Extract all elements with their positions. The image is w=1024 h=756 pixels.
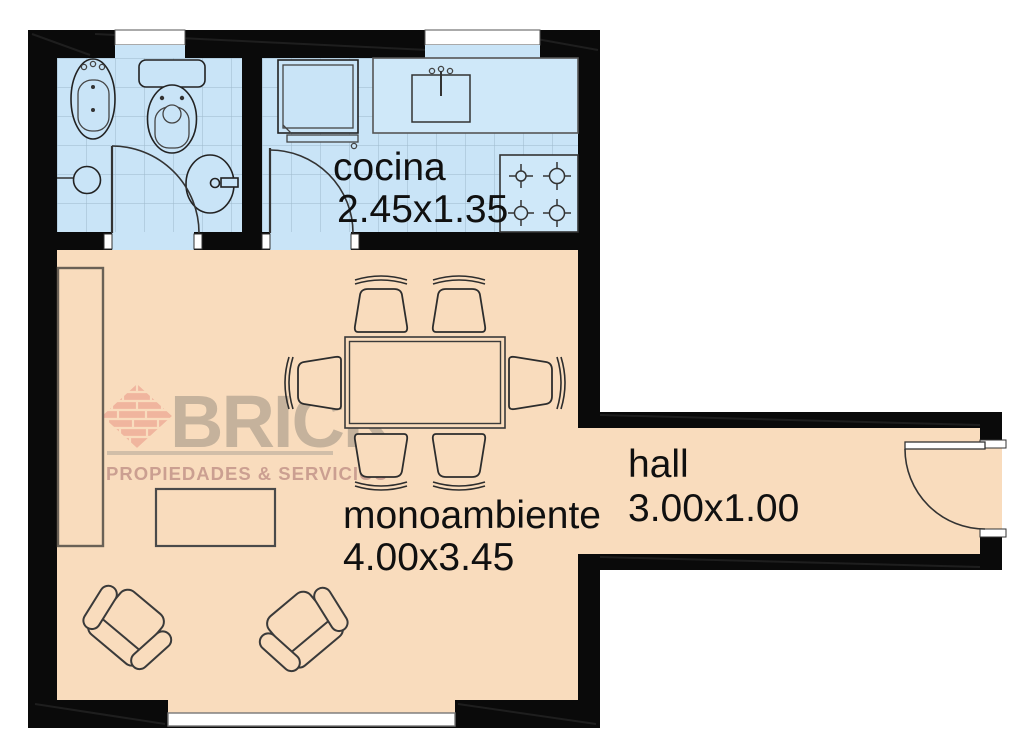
window-main-room bbox=[168, 700, 455, 726]
wardrobe bbox=[58, 268, 103, 546]
kitchen-cabinet bbox=[278, 60, 358, 149]
label-hall: hall bbox=[628, 443, 689, 486]
window-kitchen bbox=[425, 30, 540, 58]
dining-table bbox=[345, 337, 505, 428]
window-bathroom bbox=[115, 30, 185, 58]
label-cocina: cocina bbox=[333, 146, 446, 189]
kitchen-sink bbox=[412, 66, 470, 122]
wall-right-upper bbox=[578, 30, 600, 428]
wall-right-lower bbox=[578, 554, 600, 728]
wall-bath-kitchen-divider bbox=[242, 30, 262, 250]
entrance-door-opening bbox=[980, 447, 1002, 530]
sideboard bbox=[156, 489, 275, 546]
door-jamb bbox=[194, 234, 202, 249]
door-jamb bbox=[351, 234, 359, 249]
dims-monoambiente: 4.00x3.45 bbox=[343, 536, 514, 579]
floor-plan: BRICK PROPIEDADES & SERVICIOS bbox=[0, 0, 1024, 756]
watermark-underline bbox=[107, 451, 333, 455]
door-jamb bbox=[104, 234, 112, 249]
bidet bbox=[71, 59, 115, 139]
floor-plan-svg: BRICK PROPIEDADES & SERVICIOS bbox=[0, 0, 1024, 756]
kitchen-door-opening bbox=[270, 232, 351, 250]
bathroom-door-opening bbox=[112, 232, 194, 250]
dims-cocina: 2.45x1.35 bbox=[337, 188, 508, 231]
cooktop bbox=[500, 155, 578, 232]
label-monoambiente: monoambiente bbox=[343, 494, 601, 537]
wall-left bbox=[28, 30, 57, 728]
door-jamb bbox=[262, 234, 270, 249]
watermark-tagline-text: PROPIEDADES & SERVICIOS bbox=[106, 463, 388, 484]
door-jamb bbox=[980, 529, 1006, 537]
dims-hall: 3.00x1.00 bbox=[628, 487, 799, 530]
kitchen-counter bbox=[373, 58, 578, 133]
